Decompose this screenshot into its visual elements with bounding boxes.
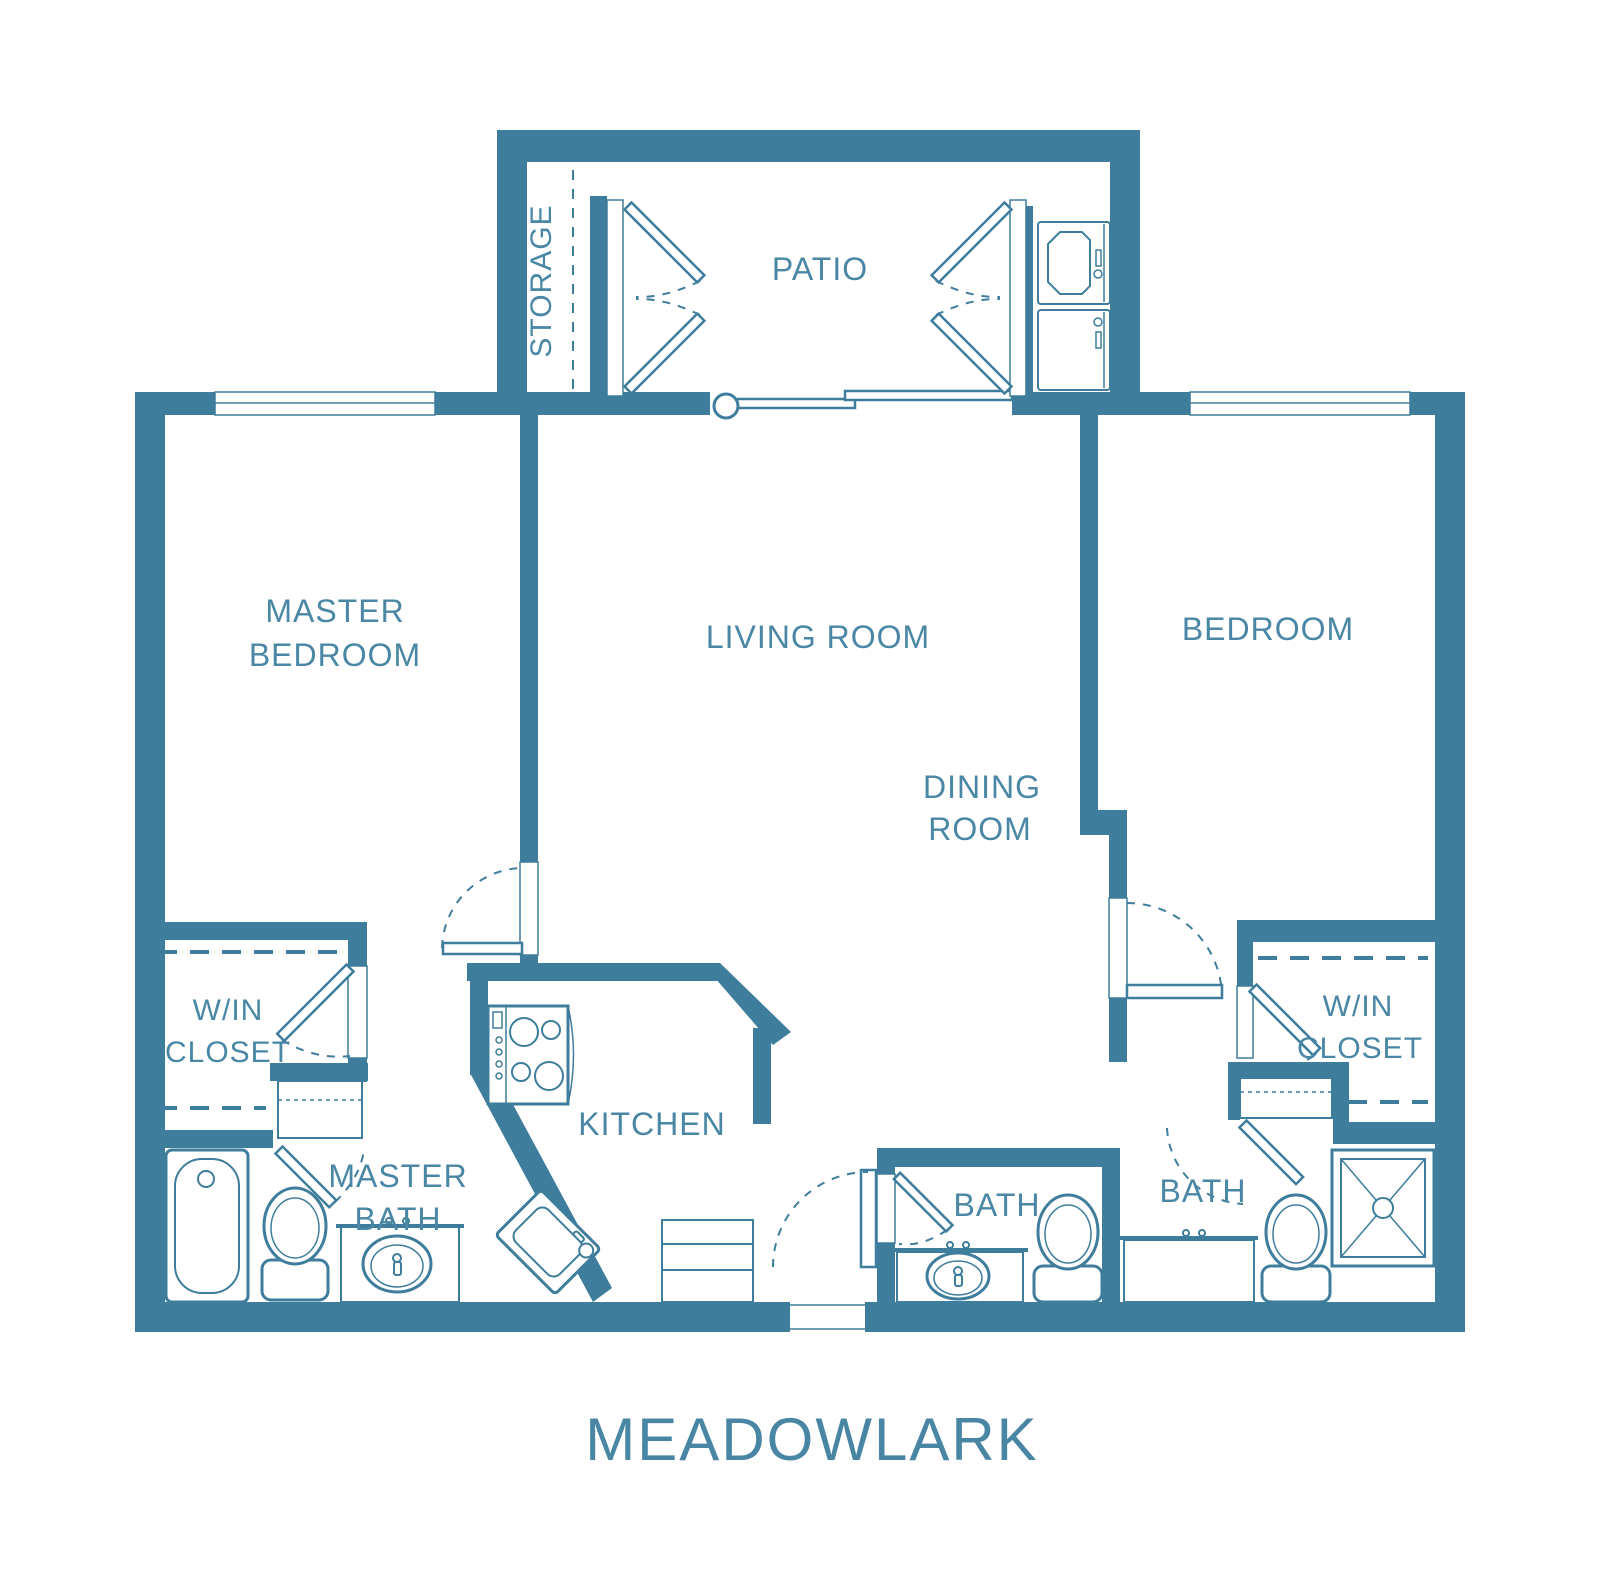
bath-middle-top-wall — [877, 1148, 1120, 1167]
linen-cabinet-left — [278, 1081, 362, 1138]
win-closet-right-label: W/IN — [1323, 990, 1394, 1023]
kitchen-angled-wall — [702, 963, 791, 1045]
linen-cabinet-right — [1240, 1078, 1332, 1118]
win-closet-left-label: CLOSET — [165, 1036, 291, 1069]
right-outer-wall — [1435, 392, 1465, 1332]
patio-label: PATIO — [772, 251, 868, 287]
toilet-bath-middle — [1034, 1195, 1102, 1302]
linen-right-side-wall — [1228, 1078, 1240, 1120]
sliding-door — [714, 391, 1012, 418]
master-bath-label: BATH — [355, 1201, 442, 1237]
vanity-bath-right — [1120, 1230, 1258, 1302]
french-doors-right — [932, 200, 1026, 396]
closet-left-bottom-wall — [135, 1130, 273, 1148]
bath-middle-label: BATH — [954, 1187, 1041, 1223]
master-bedroom-label: MASTER — [265, 593, 404, 629]
top-wall — [1012, 392, 1190, 415]
dryer — [1038, 310, 1110, 390]
stove — [488, 1006, 574, 1104]
closet-left-right-wall — [348, 922, 367, 966]
closet-right-left-wall — [1237, 942, 1253, 986]
master-bedroom-window — [215, 392, 435, 415]
shower-top-wall — [1333, 1122, 1465, 1144]
master-bath-label: MASTER — [328, 1158, 467, 1194]
storage-label: STORAGE — [525, 204, 558, 357]
storage-right-wall — [590, 196, 607, 398]
patio-left-wall — [497, 130, 527, 398]
top-wall — [435, 392, 710, 415]
closet-right-top-wall — [1237, 920, 1465, 942]
washer-dryer — [1038, 222, 1110, 390]
shower — [1332, 1150, 1434, 1266]
washer — [1038, 222, 1110, 304]
vanity-sink-bath-middle — [893, 1242, 1028, 1302]
bottom-wall — [865, 1302, 1465, 1332]
bedroom-left-wall — [1080, 415, 1098, 813]
kitchen-right-wall — [753, 1028, 771, 1124]
bedroom-label: BEDROOM — [1182, 611, 1354, 647]
bath-right-label: BATH — [1160, 1173, 1247, 1209]
patio-top-wall — [497, 130, 1140, 162]
master-bedroom-wall — [520, 415, 538, 862]
kitchen-top-wall — [467, 963, 718, 981]
dining-room-label: ROOM — [928, 811, 1032, 847]
burner — [512, 1063, 530, 1081]
dining-room-label: DINING — [923, 769, 1041, 805]
floor-plan: STORAGE PATIO MASTER BEDROOM LIVING ROOM… — [0, 0, 1600, 1584]
living-room-label: LIVING ROOM — [706, 619, 930, 655]
master-bedroom-label: BEDROOM — [249, 637, 421, 673]
patio-right-wall — [1110, 130, 1140, 398]
sliding-door-handle — [714, 394, 738, 418]
bedroom-wall — [1109, 998, 1127, 1062]
closet-left-top-wall — [135, 922, 367, 940]
bedroom-window — [1190, 392, 1410, 415]
bedroom-wall-step — [1080, 810, 1127, 835]
win-closet-left-label: W/IN — [193, 994, 264, 1027]
toilet-bath-right — [1262, 1195, 1330, 1302]
win-closet-right-label: CLOSET — [1297, 1032, 1423, 1065]
bottom-wall — [135, 1302, 790, 1332]
bath-middle-right-wall — [1102, 1167, 1120, 1302]
french-doors-left — [607, 200, 704, 396]
bath-middle-door — [877, 1173, 953, 1245]
burner — [535, 1062, 563, 1090]
bath-middle-left-wall — [877, 1243, 895, 1302]
master-bedroom-door — [442, 862, 538, 955]
toilet-master — [262, 1188, 328, 1300]
burner — [510, 1018, 538, 1046]
left-outer-wall — [135, 392, 165, 1332]
kitchen-counter — [662, 1220, 753, 1302]
burner — [542, 1021, 560, 1039]
bathtub — [166, 1150, 248, 1302]
plan-title: MEADOWLARK — [585, 1406, 1038, 1473]
kitchen-left-wall — [470, 963, 488, 1075]
kitchen-label: KITCHEN — [578, 1106, 725, 1142]
bedroom-wall — [1109, 835, 1127, 898]
bedroom-door — [1109, 898, 1222, 998]
bath-middle-left-wall — [877, 1167, 895, 1174]
